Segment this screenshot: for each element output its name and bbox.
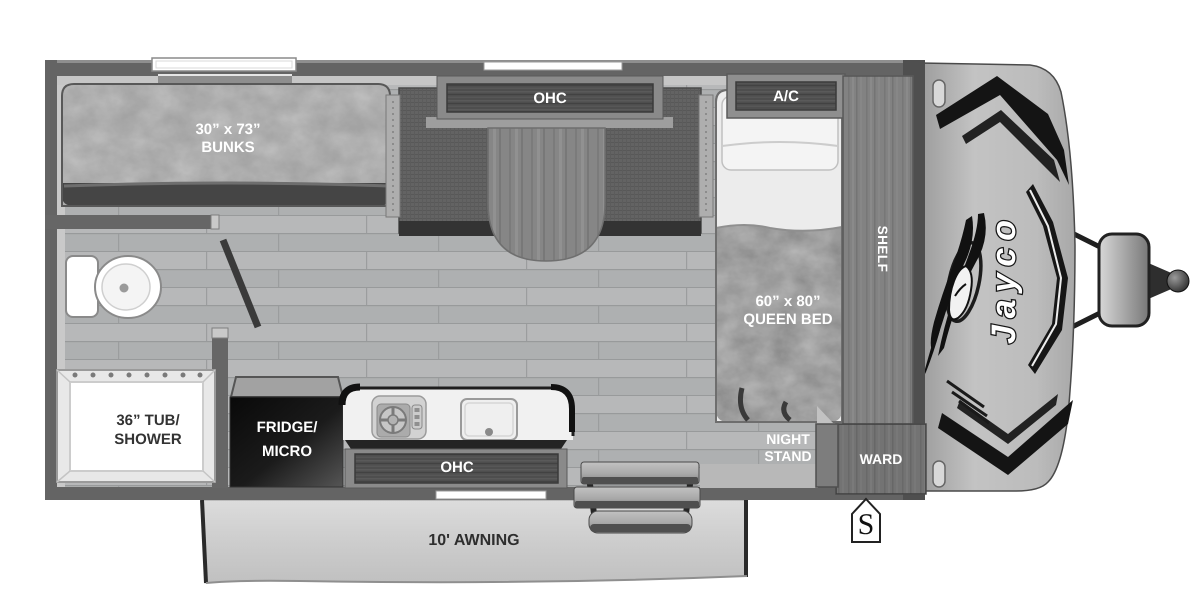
svg-text:NIGHT: NIGHT: [766, 431, 810, 447]
svg-text:BUNKS: BUNKS: [201, 139, 254, 156]
svg-text:10' AWNING: 10' AWNING: [428, 532, 519, 549]
svg-text:OHC: OHC: [533, 90, 567, 107]
svg-text:S: S: [858, 508, 875, 541]
svg-text:SHOWER: SHOWER: [114, 431, 182, 448]
svg-text:STAND: STAND: [764, 448, 811, 464]
svg-text:30” x 73”: 30” x 73”: [195, 121, 260, 138]
svg-text:SHELF: SHELF: [875, 226, 890, 273]
svg-text:60” x 80”: 60” x 80”: [755, 293, 820, 310]
svg-text:Jayco: Jayco: [985, 220, 1023, 344]
svg-text:MICRO: MICRO: [262, 443, 312, 460]
svg-text:QUEEN BED: QUEEN BED: [743, 311, 832, 328]
svg-text:OHC: OHC: [440, 459, 474, 476]
svg-text:WARD: WARD: [860, 451, 903, 467]
svg-text:A/C: A/C: [773, 88, 799, 105]
svg-text:36” TUB/: 36” TUB/: [116, 412, 180, 429]
svg-text:FRIDGE/: FRIDGE/: [257, 419, 319, 436]
